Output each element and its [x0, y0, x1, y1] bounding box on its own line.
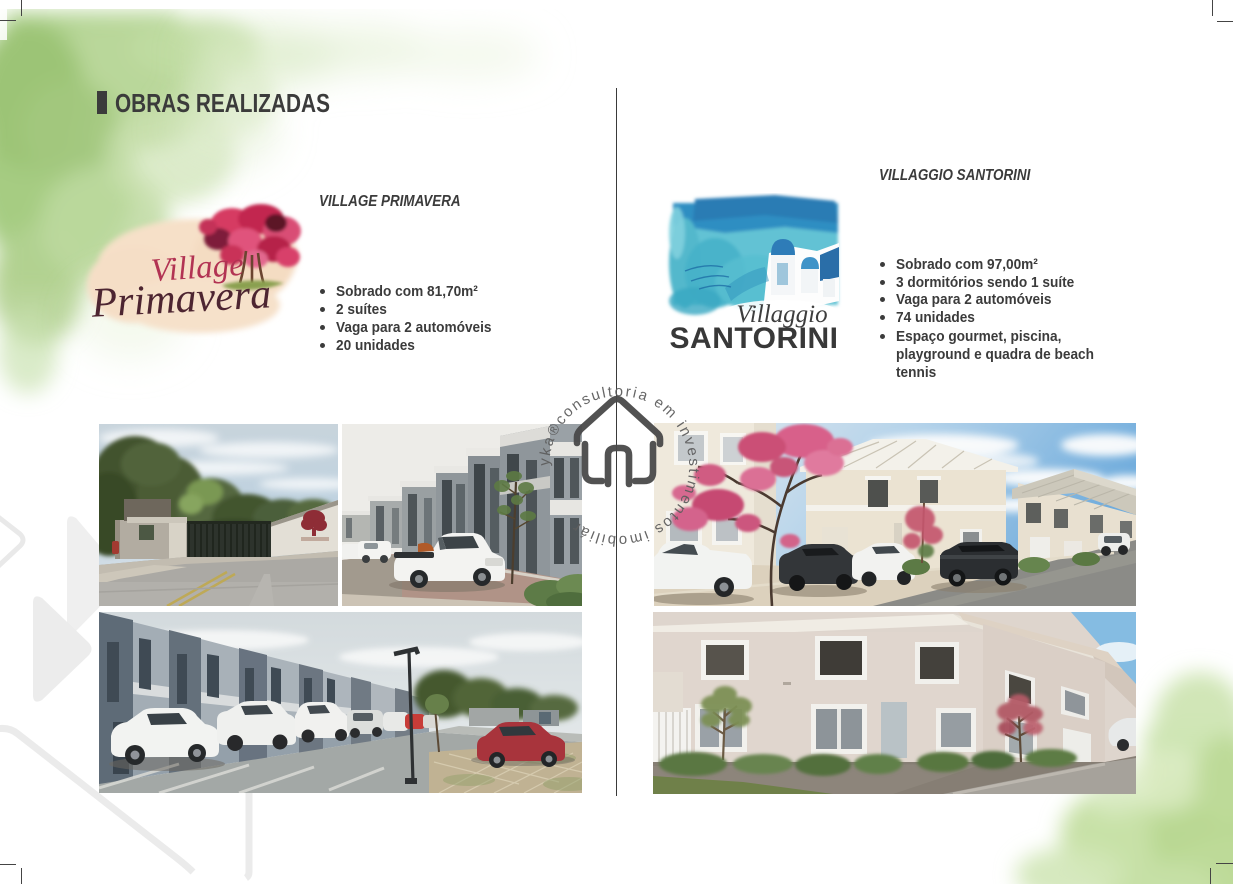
svg-text:yka®consultoria em investiment: yka®consultoria em investimentos imobili…	[536, 383, 702, 549]
svg-text:Primavera: Primavera	[89, 271, 272, 326]
